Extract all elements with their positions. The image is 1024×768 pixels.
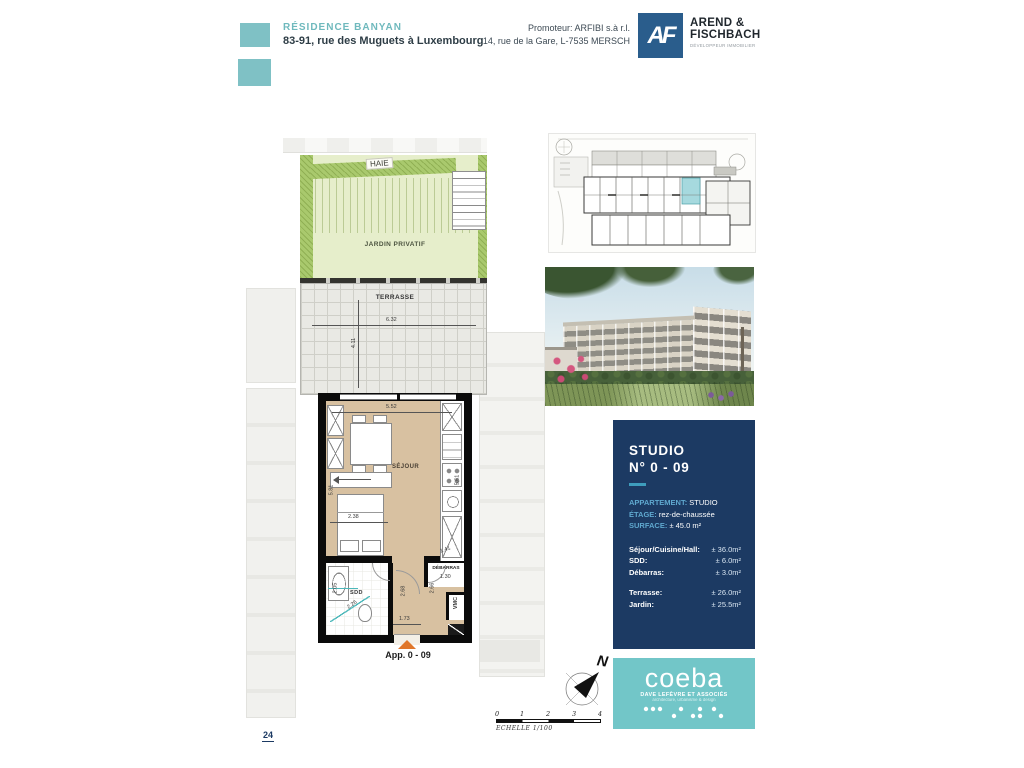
title-underline-accent: [629, 483, 646, 486]
architect-subtitle: DAVE LEFÈVRE ET ASSOCIÉS: [620, 692, 748, 697]
unit-title-line1: STUDIO: [629, 442, 741, 459]
apartment-meta-label: APPARTEMENT:: [629, 498, 687, 507]
room-value: ± 25.5m²: [711, 599, 741, 611]
sejour-right-dim: 5.61: [454, 475, 460, 486]
room-row: Terrasse: ± 26.0m²: [629, 587, 741, 599]
sofa-arrow-head-icon: [333, 476, 339, 484]
garden-stairs: [452, 171, 486, 230]
terrace-depth-dimline: [358, 300, 359, 388]
bed-pillow-right-icon: [362, 540, 381, 552]
room-row: Jardin: ± 25.5m²: [629, 599, 741, 611]
room-row: SDD: ± 6.0m²: [629, 555, 741, 567]
hall-height2-dim: 2.66: [429, 583, 435, 594]
af-monogram: AF: [648, 22, 674, 50]
floor-overview-drawing: [548, 133, 756, 253]
hedge-label: HAIE: [366, 157, 393, 170]
bed-pillow-left-icon: [340, 540, 359, 552]
etage-meta-line: ÉTAGE: rez-de-chaussée: [629, 509, 741, 521]
entry-width-dimline: [393, 624, 421, 625]
room-label: Jardin:: [629, 599, 654, 611]
dining-chair-icon: [352, 415, 366, 423]
promoter-block: Promoteur: ARFIBI s.à r.l. 14, rue de la…: [430, 22, 630, 48]
terrace-label: TERRASSE: [353, 294, 437, 301]
promoter-line2: 14, rue de la Gare, L-7535 MERSCH: [430, 35, 630, 48]
debarras-depth-dim: 1.30: [440, 574, 451, 580]
sink-icon: [442, 490, 462, 512]
bed-width-dim: 2.38: [348, 514, 359, 520]
terrace-width-dimline: [312, 325, 476, 326]
pink-flowers-icon: [549, 353, 593, 389]
neighbour-left-upper: [246, 288, 296, 383]
terrace-width-dim: 6.32: [386, 317, 397, 323]
hall-height-dim: 2.68: [400, 586, 406, 597]
surface-meta-line: SURFACE: ± 45.0 m²: [629, 520, 741, 532]
room-row: Séjour/Cuisine/Hall: ± 36.0m²: [629, 544, 741, 556]
room-areas-list: Séjour/Cuisine/Hall: ± 36.0m² SDD: ± 6.0…: [629, 544, 741, 611]
purple-flowers-icon: [705, 389, 741, 403]
tree-trunk-right: [741, 327, 744, 373]
room-label: SDD:: [629, 555, 647, 567]
sejour-label: SÉJOUR: [392, 464, 419, 470]
surface-meta-value: ± 45.0 m²: [669, 521, 701, 530]
architect-name: coeba: [613, 664, 755, 692]
etage-meta-label: ÉTAGE:: [629, 510, 657, 519]
neighbour-left: [246, 388, 296, 718]
sdd-height-dim: 2.05: [332, 583, 338, 594]
scale-tick-0: 0: [495, 710, 499, 718]
sejour-width-dim: 5.52: [386, 404, 397, 410]
vmc-label: VMC: [453, 597, 459, 609]
north-label: N: [596, 652, 609, 670]
apartment-number-label: App. 0 - 09: [368, 650, 448, 660]
garden-grass-strokes: [315, 178, 475, 233]
scale-tick-4: 4: [598, 710, 602, 718]
wardrobe-lower-icon: [327, 438, 344, 469]
page-number: 24: [262, 730, 274, 742]
room-label: Terrasse:: [629, 587, 662, 599]
header-accent-square-bottom: [238, 59, 271, 86]
tree-foliage-right-icon: [713, 267, 754, 285]
sdd-label: SDD: [350, 590, 363, 596]
context-lines-above-plan: [283, 138, 487, 153]
developer-tagline: DÉVELOPPEUR IMMOBILIER: [690, 44, 762, 48]
dining-table-icon: [350, 423, 392, 465]
fridge-icon: [442, 403, 462, 431]
floor-overview-plan: [548, 133, 756, 253]
sejour-width-dimline: [332, 412, 452, 413]
sofa-icon: [330, 472, 392, 488]
developer-name-line2: FISCHBACH: [690, 29, 790, 41]
neighbour-right-step: [480, 640, 540, 662]
sejour-left-dim: 5.81: [328, 485, 334, 496]
scale-bar-group: 0 1 2 3 4 ECHELLE 1/100: [495, 710, 607, 732]
debarras-label: DÉBARRAS: [429, 566, 463, 571]
garden-label: JARDIN PRIVATIF: [345, 241, 445, 248]
room-label: Débarras:: [629, 567, 664, 579]
scale-bar: [496, 719, 601, 723]
bed-blanket-line: [337, 512, 384, 513]
shaft-box: [448, 624, 464, 635]
brochure-page: RÉSIDENCE BANYAN 83-91, rue des Muguets …: [0, 0, 1024, 768]
developer-name-block: AREND & FISCHBACH DÉVELOPPEUR IMMOBILIER: [690, 17, 790, 50]
scale-tick-2: 2: [546, 710, 550, 718]
entry-width-dim: 1.73: [399, 616, 410, 622]
bed-width-dimline: [330, 522, 388, 523]
sofa-arrow-icon: [337, 479, 371, 480]
unit-title-line2: N° 0 - 09: [629, 459, 741, 476]
room-value: ± 26.0m²: [711, 587, 741, 599]
apartment-meta-line: APPARTEMENT: STUDIO: [629, 497, 741, 509]
scale-tick-3: 3: [572, 710, 576, 718]
compass-rose: N: [552, 653, 614, 715]
etage-meta-value: rez-de-chaussée: [659, 510, 715, 519]
room-value: ± 6.0m²: [716, 555, 741, 567]
wardrobe-upper-icon: [327, 405, 344, 436]
tree-foliage-mid-icon: [615, 267, 685, 287]
building-rendering: [545, 267, 754, 406]
room-label: Séjour/Cuisine/Hall:: [629, 544, 700, 556]
sdd-wall: [326, 556, 392, 563]
unit-info-panel: STUDIO N° 0 - 09 APPARTEMENT: STUDIO ÉTA…: [613, 420, 755, 649]
arend-fischbach-logo-icon: AF: [638, 13, 683, 58]
rooms-spacer: [629, 578, 741, 587]
braille-dots-icon: [638, 705, 730, 720]
surface-meta-label: SURFACE:: [629, 521, 667, 530]
developer-name-line1: AREND &: [690, 17, 790, 29]
room-value: ± 36.0m²: [711, 544, 741, 556]
room-value: ± 3.0m²: [716, 567, 741, 579]
scale-label: ECHELLE 1/100: [496, 725, 553, 732]
architect-tagline: architecture, urbanisme & design: [633, 698, 735, 702]
promoter-line1: Promoteur: ARFIBI s.à r.l.: [430, 22, 630, 35]
entry-arrow-icon: [398, 640, 416, 649]
header-accent-square-top: [240, 23, 270, 47]
scale-tick-1: 1: [520, 710, 524, 718]
architect-logo-block: coeba DAVE LEFÈVRE ET ASSOCIÉS architect…: [613, 658, 755, 729]
apartment-meta-value: STUDIO: [689, 498, 717, 507]
terrace-depth-dim: 4.11: [351, 338, 357, 348]
terrace-window-mullion: [397, 393, 400, 401]
oven-icon: [442, 434, 462, 460]
dining-chair-icon: [373, 415, 387, 423]
neighbour-right: [479, 332, 545, 677]
room-row: Débarras: ± 3.0m²: [629, 567, 741, 579]
